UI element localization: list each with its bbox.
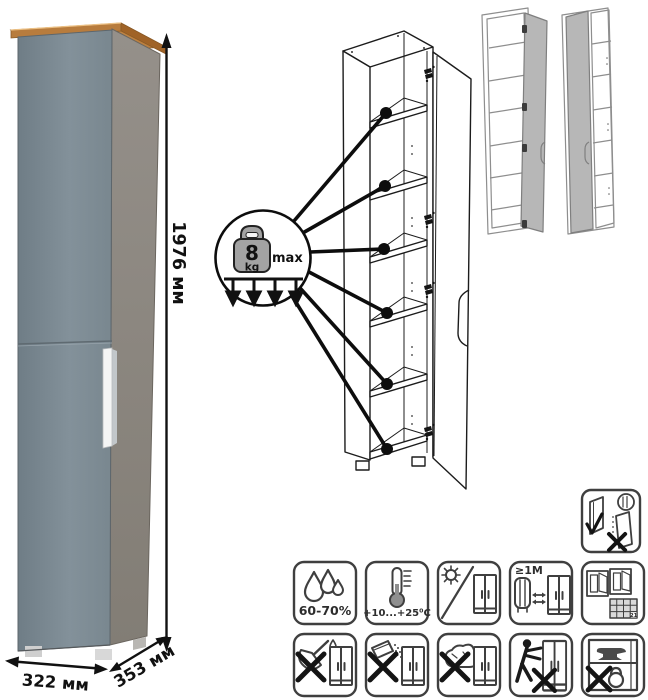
diagram-canvas: 1976 мм 322 мм 353 мм [0, 0, 648, 700]
load-unit: kg [245, 262, 260, 274]
variant-door-right [482, 8, 547, 234]
calendar-day-label: 21 [630, 613, 638, 619]
no-direct-sunlight-icon [438, 562, 500, 624]
door-adjustment-icon [582, 490, 640, 552]
product-render [11, 23, 166, 660]
furniture-instruction-sheet: 1976 мм 322 мм 353 мм [0, 0, 648, 700]
calendar: 21 [610, 599, 638, 619]
width-label: 322 мм [21, 670, 89, 694]
variant-cabinets [482, 8, 614, 234]
spacing-arrows [532, 593, 546, 605]
variant-door-panel [521, 13, 547, 232]
no-overload-icon [582, 634, 644, 696]
height-dimension: 1976 мм [162, 33, 189, 652]
variant-door-panel [566, 11, 593, 233]
humidity-label: 60-70% [299, 603, 352, 618]
door-handle-shadow [112, 349, 117, 446]
drawing-foot-right [412, 457, 425, 466]
variant-door-left [562, 8, 614, 234]
cabinet-line-drawing [343, 31, 471, 489]
height-label: 1976 мм [168, 221, 188, 304]
arrowhead-left [5, 657, 19, 668]
acclimatization-calendar-icon: 21 [582, 562, 644, 624]
cabinet-door-front [18, 30, 112, 651]
weight-limit-badge: 8 kg max [216, 211, 311, 306]
arrowhead-up [162, 33, 172, 48]
care-icons: 60-70% +10...+25⁰C [294, 490, 644, 696]
load-qualifier: max [272, 251, 303, 266]
arrowhead-right [94, 664, 108, 675]
temperature-label: +10...+25⁰C [363, 608, 431, 619]
depth-label: 353 мм [110, 641, 178, 691]
shelf-load-pointers [292, 107, 393, 455]
cabinet-foot-left [25, 646, 42, 657]
temperature-range-icon: +10...+25⁰C [363, 562, 431, 624]
door-handle [103, 348, 112, 448]
drawing-open-door [433, 52, 471, 489]
cabinet-side-panel [110, 29, 160, 645]
humidity-icon: 60-70% [294, 562, 356, 624]
no-solvent-sponge-icon [438, 634, 500, 696]
no-wet-cleaning-icon [294, 634, 356, 696]
width-dimension: 322 мм [5, 657, 108, 695]
x-mark [370, 654, 396, 680]
cabinet-foot-right [95, 649, 112, 660]
distance-label: ≥1M [515, 564, 543, 577]
drawing-foot-left [356, 461, 369, 470]
no-abrasive-powder-icon [366, 634, 428, 696]
pointer-dots [378, 107, 393, 455]
heater-distance-icon: ≥1M [510, 562, 572, 624]
no-dragging-icon [510, 634, 572, 696]
drawing-shelves [370, 98, 427, 459]
